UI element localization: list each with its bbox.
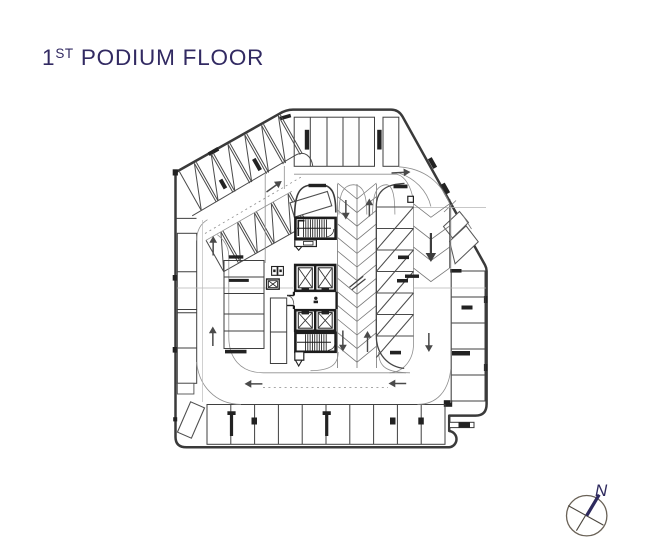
svg-text:1ST PODIUM FLOOR: 1ST PODIUM FLOOR — [42, 45, 264, 70]
svg-text:N: N — [595, 481, 608, 500]
